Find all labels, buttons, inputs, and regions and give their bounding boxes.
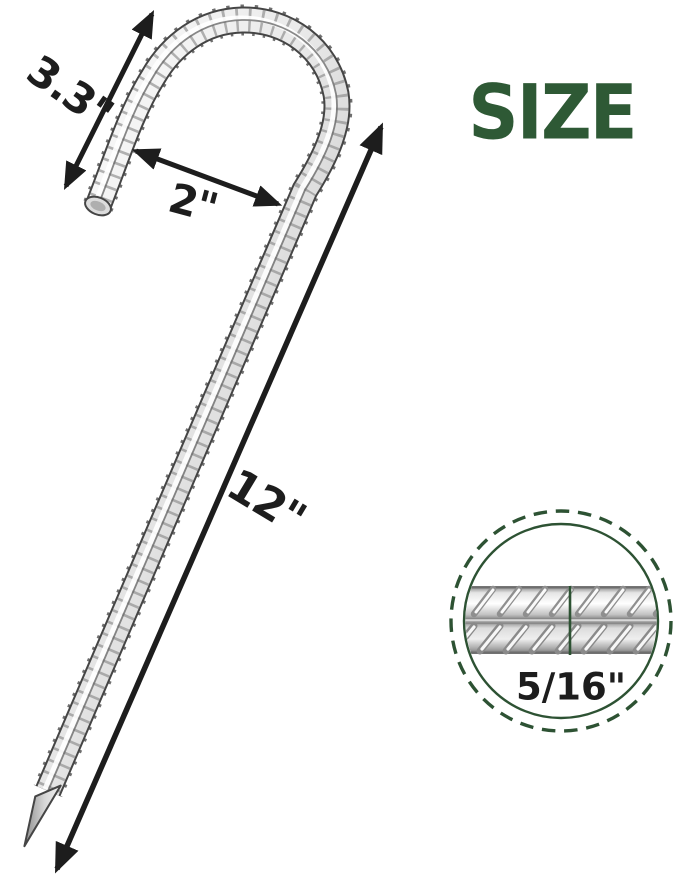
diameter-label: 5/16" bbox=[516, 666, 626, 709]
size-title: SIZE bbox=[468, 68, 635, 157]
detail-rebar-section bbox=[448, 586, 679, 655]
product-size-diagram: 3.3" 2" 12" 5/16" SIZE bbox=[0, 0, 679, 885]
stake-body bbox=[24, 18, 337, 846]
total-length-arrow bbox=[57, 127, 381, 869]
stake-tip bbox=[24, 786, 60, 847]
